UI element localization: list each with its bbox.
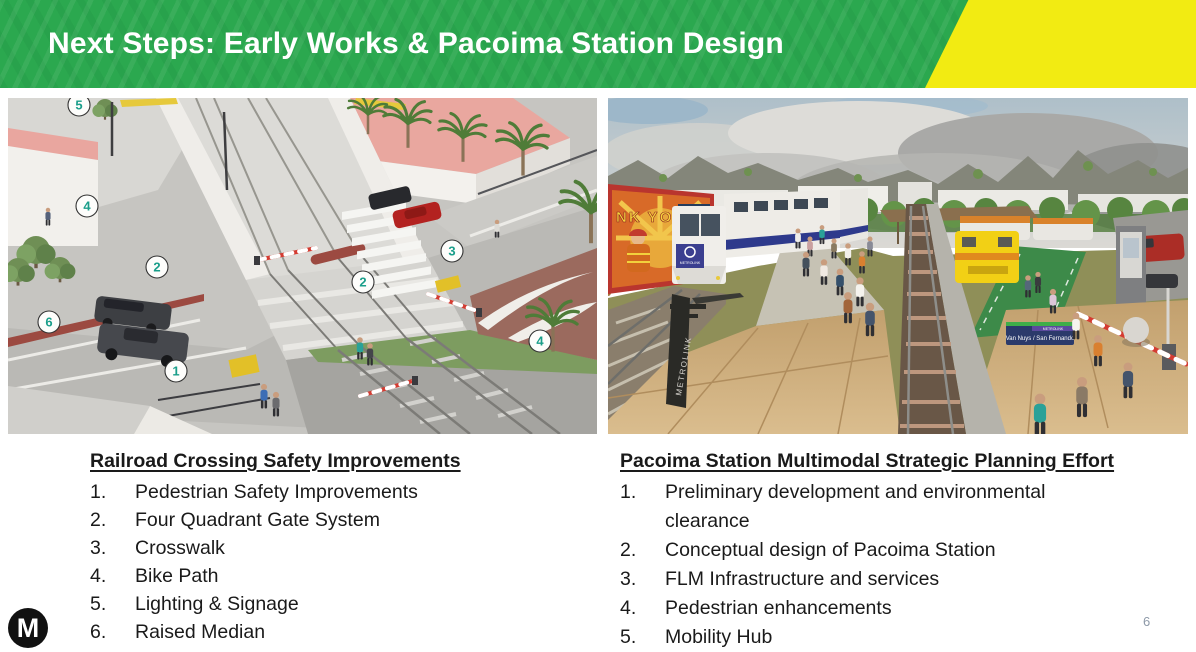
pacoima-list-heading: Pacoima Station Multimodal Strategic Pla… xyxy=(620,450,1150,473)
station-sign: METROLINK Van Nuys / San Fernando xyxy=(1006,322,1075,345)
railroad-crossing-rendering: 5 4 2 2 6 1 3 4 xyxy=(8,98,597,434)
svg-text:4: 4 xyxy=(83,199,91,214)
slide: Next Steps: Early Works & Pacoima Statio… xyxy=(0,0,1196,652)
svg-text:2: 2 xyxy=(359,275,366,290)
svg-text:1: 1 xyxy=(172,364,179,379)
header-band: Next Steps: Early Works & Pacoima Statio… xyxy=(0,0,1196,88)
list-item: 1.Pedestrian Safety Improvements xyxy=(90,478,510,506)
sign-brand-text: METROLINK xyxy=(1043,327,1064,331)
yellow-truck xyxy=(955,231,1019,283)
list-item: 2.Conceptual design of Pacoima Station xyxy=(620,536,1150,565)
railroad-list: Railroad Crossing Safety Improvements 1.… xyxy=(90,450,510,646)
pacoima-station-rendering: NK YOU xyxy=(608,98,1188,434)
list-item: 4.Pedestrian enhancements xyxy=(620,594,1150,623)
station-scene: NK YOU xyxy=(608,98,1188,434)
pacoima-list: Pacoima Station Multimodal Strategic Pla… xyxy=(620,450,1150,652)
header-yellow-accent xyxy=(925,0,1196,88)
svg-text:4: 4 xyxy=(536,334,544,349)
svg-text:2: 2 xyxy=(153,260,160,275)
train-logo-text: METROLINK xyxy=(680,261,701,265)
list-item: 2.Four Quadrant Gate System xyxy=(90,506,510,534)
crossing-scene xyxy=(8,98,597,434)
svg-text:3: 3 xyxy=(448,244,455,259)
station-sign-text: Van Nuys / San Fernando xyxy=(1006,336,1075,342)
page-number: 6 xyxy=(1143,614,1150,629)
list-item: 1.Preliminary development and environmen… xyxy=(620,478,1150,536)
slide-title: Next Steps: Early Works & Pacoima Statio… xyxy=(48,27,784,61)
list-item: 5.Mobility Hub xyxy=(620,623,1150,652)
svg-text:6: 6 xyxy=(45,315,52,330)
list-item: 6.Raised Median xyxy=(90,618,510,646)
list-item: 5.Lighting & Signage xyxy=(90,590,510,618)
svg-text:5: 5 xyxy=(75,98,82,113)
railroad-list-heading: Railroad Crossing Safety Improvements xyxy=(90,450,510,473)
metro-logo: M xyxy=(8,608,48,648)
list-item: 3.Crosswalk xyxy=(90,534,510,562)
list-item: 4.Bike Path xyxy=(90,562,510,590)
list-item: 3.FLM Infrastructure and services xyxy=(620,565,1150,594)
